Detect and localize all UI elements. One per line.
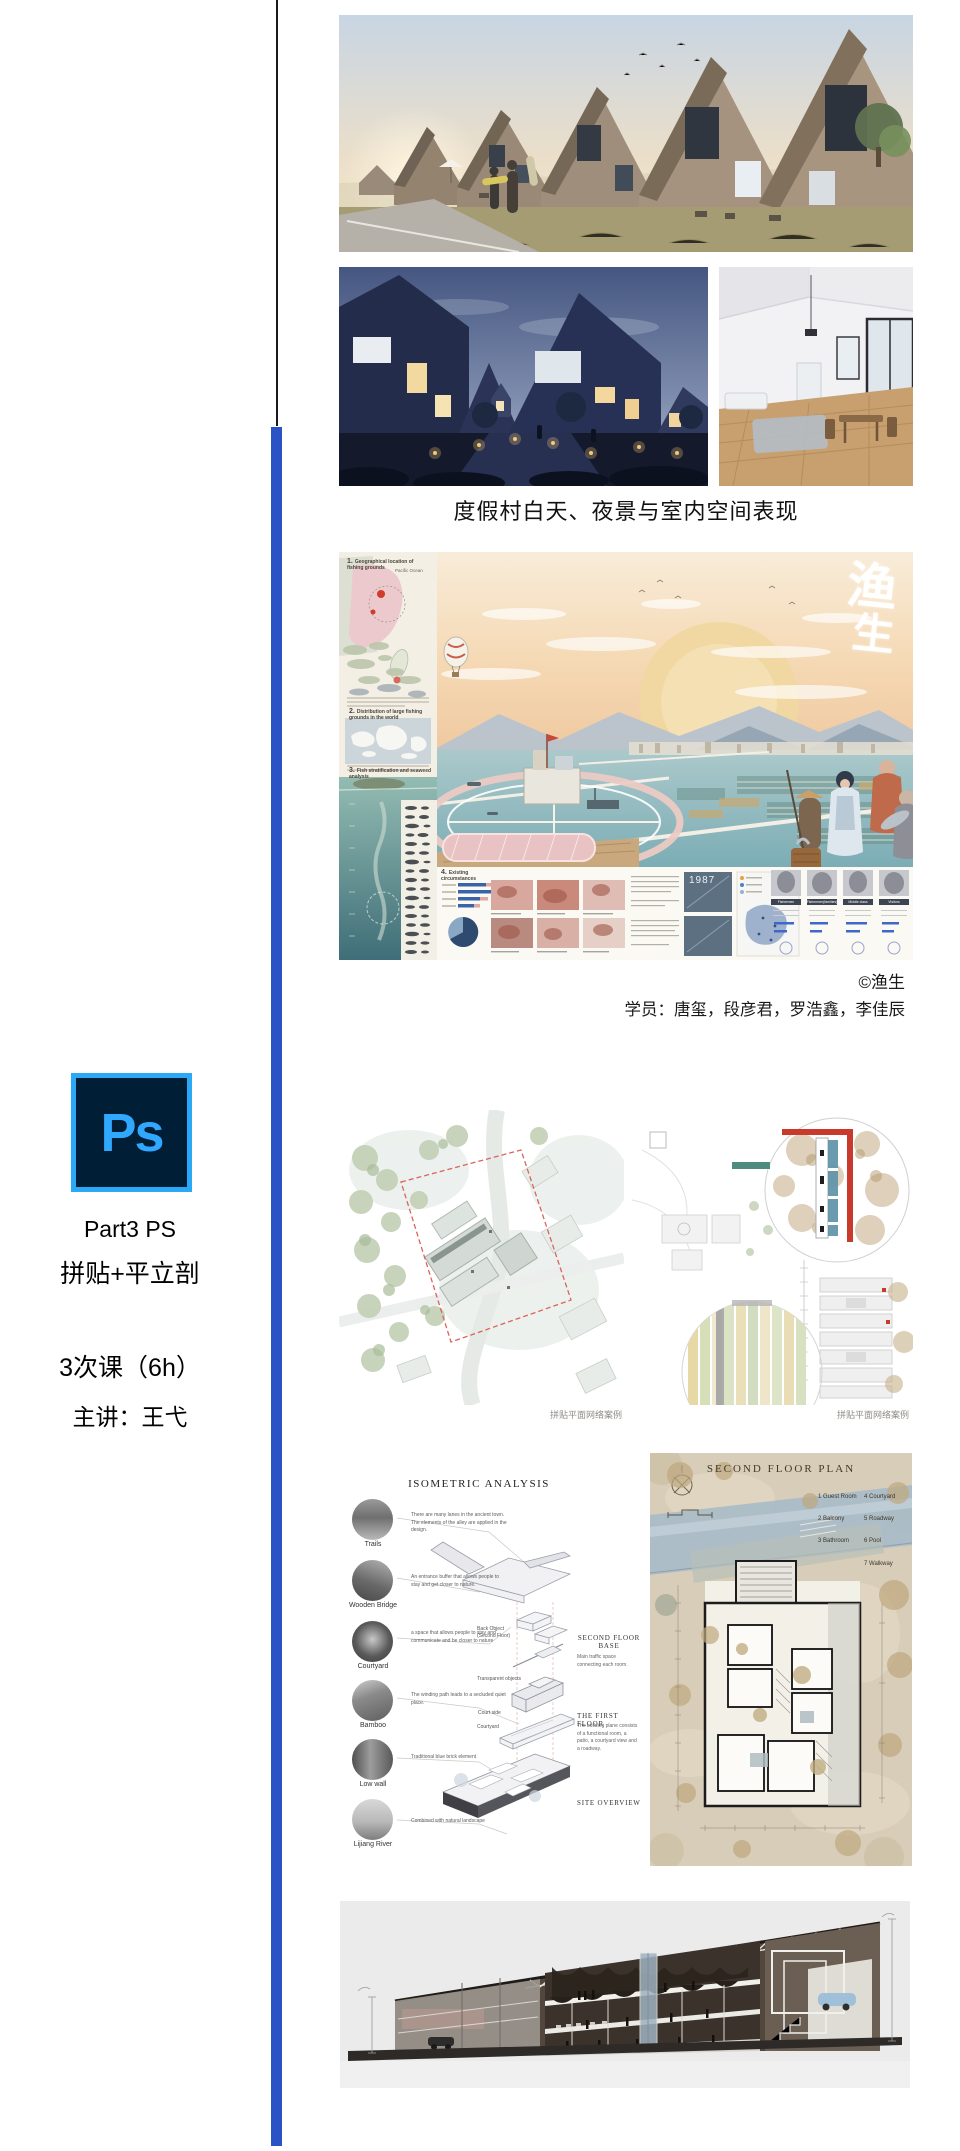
poster-section4-heading: 4.Existing circumstances [441,869,501,882]
resort-day-render-image [339,15,913,252]
floor-plan-title: SECOND FLOOR PLAN [650,1463,912,1475]
axon-second-floor-boxes [517,1612,567,1644]
iso-label-wooden-bridge: Wooden Bridge [339,1602,407,1609]
building-grid [820,1278,892,1398]
photoshop-logo-icon: Ps [71,1073,192,1192]
site-plan-technical-image [632,1110,913,1405]
watermark-char-yu: 渔 [843,561,902,614]
iso-label-lijiang-river: Lijiang River [339,1841,407,1848]
timeline-rule-black [276,0,278,426]
iso-label-low-wall: Low wall [339,1781,407,1788]
iso-label-bamboo: Bamboo [339,1722,407,1729]
iso-note-trails: There are many lanes in the ancient town… [411,1512,507,1535]
column-header-visitors: Visitors [879,899,909,905]
column-header-fishermen-families: Fishermen(families) [807,899,837,905]
iso-label-trails: Trails [339,1541,407,1548]
photo-circle-trails [352,1499,393,1540]
stage-title-site-overview: SITE OVERVIEW [577,1799,641,1807]
poster-copyright: ©渔生 [339,968,905,993]
column-header-middle-class: Middle class [843,899,873,905]
fisheries-poster: 渔 生 Pacific Ocean 1.Geographical locatio… [339,552,913,960]
course-lecturer: 主讲：王弋 [20,1398,240,1432]
course-topic: 拼贴+平立剖 [20,1254,240,1290]
poster-students: 学员：唐玺，段彦君，罗浩鑫，李佳辰 [339,996,905,1020]
blue-building-bar [828,1140,838,1236]
poster-year-label: 1987 [689,875,715,886]
axon-first-floor-plate [500,1714,574,1749]
poster-section3-heading: 3.Fish stratification and seaweed analys… [349,767,433,780]
course-part-title: Part3 PS [20,1216,240,1243]
floor-plan-legend-right: 4 Courtyard 5 Roadway 6 Pool 7 Walkway [864,1481,895,1581]
poster-bottom-strip [437,867,913,960]
iso-label-courtyard: Courtyard [339,1663,407,1670]
plan-right-caption: 拼贴平面网络案例 [632,1408,909,1421]
axon-site-base [443,1754,570,1818]
isometric-analysis-section: ISOMETRIC ANALYSIS [339,1462,641,1895]
poster-section1-heading: 1.Geographical location of fishing groun… [347,558,427,571]
teal-bar [732,1162,770,1169]
gallery-caption: 度假村白天、夜景与室内空间表现 [339,494,913,526]
poster-left-panel [339,552,437,960]
resort-night-render-image [339,267,708,486]
timeline-rule-blue [271,427,282,2146]
stage-title-second-floor-base: SECOND FLOOR BASE [577,1634,641,1650]
mid-label-transparent-objects: Transparent objects [477,1676,521,1683]
watermark-char-sheng: 生 [850,612,896,656]
axon-pole-piece [513,1644,563,1667]
mid-label-court-side: Court side [478,1710,512,1717]
photo-circle-wooden-bridge [352,1560,393,1601]
resort-interior-render-image [719,267,913,486]
poster-section2-heading: 2.Distribution of large fishing grounds … [349,708,433,721]
photo-circle-courtyard [352,1621,393,1662]
fish-list-column [401,800,437,960]
stage-note-first-floor: The building plane consists of a functio… [577,1723,639,1753]
building-section-render-image [340,1901,910,2088]
iso-note-bamboo: The winding path leads to a secluded qui… [411,1692,507,1707]
course-sessions: 3次课（6h） [20,1348,240,1384]
strip-pie-chart [448,917,478,947]
mid-label-back-object: Back Object (Second Floor) [477,1626,511,1640]
course-long-page: Ps Part3 PS 拼贴+平立剖 3次课（6h） 主讲：王弋 [0,0,960,2151]
iso-note-wooden-bridge: An entrance buffer that allows people to… [411,1574,507,1589]
photo-circle-low-wall [352,1739,393,1780]
photo-circle-bamboo [352,1680,393,1721]
floor-plan-legend-left: 1 Guest Room 2 Balcony 3 Bathroom [818,1481,857,1559]
photo-circle-lijiang-river [352,1799,393,1840]
stage-note-second-floor-base: Main traffic space connecting each room. [577,1654,639,1669]
axon-roof [431,1542,570,1603]
right-rooms [765,1923,880,2051]
poster-watermark: 渔 生 [838,561,901,656]
plan-left-caption: 拼贴平面网络案例 [339,1408,622,1421]
iso-note-low-wall: Traditional blue brick element [411,1754,507,1762]
mid-label-courtyard: Courtyard [477,1724,511,1731]
iso-note-lijiang-river: Combined with natural landscape [411,1818,507,1826]
photoshop-logo-text: Ps [100,1106,162,1160]
second-floor-plan-section: SECOND FLOOR PLAN 1 Guest Room 2 Balcony… [650,1453,912,1866]
column-header-fishermen: Fishermen [771,899,801,905]
site-plan-watercolor-image [339,1110,624,1405]
